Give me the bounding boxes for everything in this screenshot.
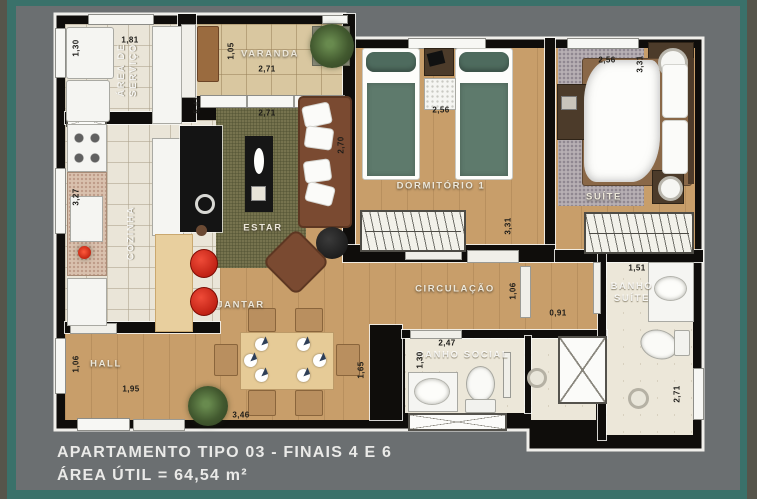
label-banho-suite: BANHOSUÍTE <box>611 281 654 305</box>
wall-stub-jantar <box>370 325 402 420</box>
door-suite <box>520 266 531 318</box>
dresser-frame <box>561 96 577 110</box>
window-varanda-top <box>322 15 348 24</box>
shower-head-suite <box>628 388 649 409</box>
window-left-hall <box>55 338 66 394</box>
dim-jantar-height: 1,65 <box>357 361 366 378</box>
suite-pillow-2 <box>662 120 688 174</box>
dining-chair-5 <box>214 344 238 376</box>
label-banho-suite-line1: BANHO <box>611 281 654 292</box>
dim-estar-sofa: 2,70 <box>337 136 346 153</box>
dim-banho-social-width: 2,47 <box>438 339 455 348</box>
plan-title-line1: APARTAMENTO TIPO 03 - FINAIS 4 E 6 <box>57 441 392 464</box>
dim-circulacao-width: 0,91 <box>549 309 566 318</box>
plan-title-line2: ÁREA ÚTIL = 64,54 m² <box>57 464 392 487</box>
dim-banho-suite-height: 2,71 <box>673 385 682 402</box>
dim-jantar-width: 3,46 <box>232 411 249 420</box>
dim-varanda-width: 2,71 <box>258 65 275 74</box>
floor-circulacao <box>343 262 598 330</box>
varanda-plant <box>310 24 354 68</box>
dim-estar-height: 5,41 <box>193 96 202 113</box>
counter-sink-ring <box>195 194 215 214</box>
door-banho-hall <box>467 250 519 263</box>
banho-social-basin <box>414 378 450 405</box>
dining-chair-4 <box>295 390 323 416</box>
wall-dormitorio-suite <box>545 38 555 250</box>
varanda-bench <box>197 26 219 82</box>
counter-bowl <box>196 225 207 236</box>
dim-estar-width: 2,71 <box>258 109 275 118</box>
label-suite: SUÍTE <box>586 192 622 203</box>
banho-social-toilet-tank <box>465 399 496 413</box>
suite-pillow-1 <box>662 64 688 118</box>
decor-cup <box>251 186 266 201</box>
single-bed-1 <box>362 48 420 180</box>
red-flower <box>78 246 91 259</box>
dim-hall-width: 1,95 <box>122 385 139 394</box>
dim-dormitorio-width: 2,56 <box>432 106 449 115</box>
banho-suite-basin <box>654 276 687 301</box>
label-area-servico-line2: SERVIÇO <box>128 43 139 97</box>
label-hall: HALL <box>90 359 122 370</box>
plate-3 <box>313 354 326 367</box>
label-circulacao: CIRCULAÇÃO <box>415 284 495 295</box>
door-servico <box>181 24 196 98</box>
dining-chair-3 <box>248 390 276 416</box>
window-suite-top <box>567 38 639 49</box>
dorm-wardrobe <box>360 210 466 252</box>
banho-social-toilet-bowl <box>466 366 495 402</box>
dim-circulacao-height: 1,06 <box>509 282 518 299</box>
dim-servico-width: 1,81 <box>121 36 138 45</box>
window-servico-top <box>88 14 154 25</box>
window-left-cozinha <box>55 168 66 234</box>
dining-chair-2 <box>295 308 323 332</box>
dim-varanda-depth: 1,05 <box>227 42 236 59</box>
label-cozinha: COZINHA <box>126 206 137 260</box>
window-banho-social-bottom <box>408 413 507 431</box>
suite-lamp-bottom <box>658 176 683 201</box>
dining-chair-1 <box>248 308 276 332</box>
window-hall-bottom <box>77 418 130 431</box>
kitchen-counter-black <box>180 126 222 232</box>
entry-door <box>133 419 185 431</box>
dim-suite-height: 3,31 <box>636 55 645 72</box>
dim-suite-width: 2,56 <box>598 56 615 65</box>
plate-5 <box>255 369 268 382</box>
sofa-pillow-2 <box>304 125 335 151</box>
label-dormitorio1: DORMITÓRIO 1 <box>397 181 486 192</box>
stove <box>67 124 107 172</box>
headboard <box>688 58 694 184</box>
floorplan-canvas: ÁREA DESERVIÇO VARANDA COZINHA ESTAR JAN… <box>0 0 757 499</box>
label-area-servico-line1: ÁREA DE <box>116 43 127 97</box>
plate-6 <box>244 354 257 367</box>
kitchen-cabinet <box>67 278 107 326</box>
dim-cozinha-depth: 3,27 <box>72 188 81 205</box>
label-estar: ESTAR <box>243 223 283 234</box>
tall-cabinet <box>152 26 182 124</box>
plate-2 <box>297 338 310 351</box>
label-banho-social: BANHO SOCIAL <box>417 350 510 361</box>
window-banho-suite-right <box>693 368 704 420</box>
label-varanda: VARANDA <box>241 49 299 60</box>
window-left-servico <box>55 28 66 78</box>
plate-4 <box>297 369 310 382</box>
label-banho-suite-line2: SUÍTE <box>614 293 650 304</box>
shower-head-social <box>527 368 547 388</box>
dim-banho-social-height: 1,30 <box>416 351 425 368</box>
jantar-plant <box>188 386 228 426</box>
dim-banho-suite-width: 1,51 <box>628 264 645 273</box>
single-bed-2 <box>455 48 513 180</box>
dim-servico-depth: 1,30 <box>72 39 81 56</box>
duvet <box>584 60 660 182</box>
plate-1 <box>255 338 268 351</box>
dim-hall-height: 1,06 <box>72 355 81 372</box>
suite-wardrobe <box>584 212 694 254</box>
sofa-pillow-3 <box>303 158 333 184</box>
breakfast-bar <box>155 234 193 332</box>
plan-title: APARTAMENTO TIPO 03 - FINAIS 4 E 6 ÁREA … <box>57 441 392 487</box>
dim-dormitorio-height: 3,31 <box>504 217 513 234</box>
vase <box>254 148 264 174</box>
banho-suite-toilet-tank <box>674 330 690 356</box>
label-area-servico: ÁREA DESERVIÇO <box>116 43 140 97</box>
door-banho-suite <box>593 262 601 314</box>
bar-stool-2 <box>190 287 218 316</box>
label-jantar: JANTAR <box>217 300 264 311</box>
shower-box <box>558 336 607 404</box>
laundry-tub <box>66 80 110 122</box>
bar-stool-1 <box>190 249 218 278</box>
